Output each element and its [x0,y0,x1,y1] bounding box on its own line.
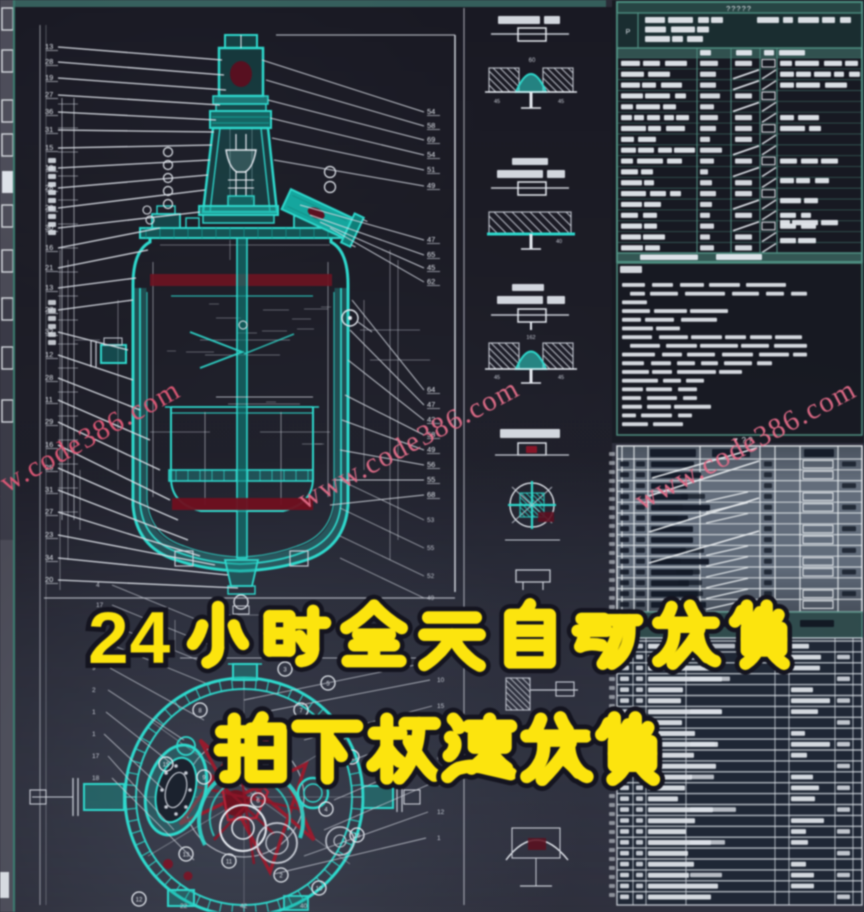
svg-text:31: 31 [45,485,53,494]
svg-text:22: 22 [180,903,188,910]
svg-text:24: 24 [88,598,171,679]
svg-text:?????: ????? [726,4,752,13]
svg-text:23: 23 [45,530,53,539]
svg-text:40: 40 [556,239,562,245]
svg-text:40: 40 [300,903,308,910]
svg-text:62: 62 [427,277,435,286]
svg-text:10: 10 [316,886,323,892]
svg-text:12: 12 [136,897,143,903]
svg-text:15: 15 [163,762,170,768]
svg-text:42: 42 [240,903,248,910]
svg-text:45: 45 [558,375,564,381]
svg-text:27: 27 [45,305,53,314]
svg-text:69: 69 [427,135,435,144]
svg-text:47: 47 [427,400,435,409]
svg-text:45: 45 [558,99,564,105]
svg-text:11: 11 [226,859,233,865]
svg-text:65: 65 [427,250,435,259]
svg-text:17: 17 [92,753,100,760]
svg-text:52: 52 [427,573,435,580]
svg-text:31: 31 [45,125,53,134]
svg-text:15: 15 [437,703,445,710]
svg-text:P: P [626,29,631,36]
svg-text:45: 45 [427,263,435,272]
svg-text:1: 1 [92,709,96,716]
svg-text:27: 27 [45,507,53,516]
svg-text:4: 4 [96,582,100,589]
svg-text:21: 21 [45,263,53,272]
svg-text:28: 28 [45,57,53,66]
svg-text:28: 28 [45,183,53,192]
svg-text:28: 28 [45,373,53,382]
svg-text:13: 13 [45,163,53,172]
svg-text:28: 28 [45,203,53,212]
svg-text:36: 36 [45,107,53,116]
svg-text:16: 16 [45,243,53,252]
svg-text:56: 56 [427,460,435,469]
svg-text:11: 11 [45,395,53,404]
svg-text:54: 54 [427,107,435,116]
svg-text:68: 68 [427,490,435,499]
svg-text:49: 49 [427,595,435,602]
svg-text:58: 58 [427,121,435,130]
svg-text:12: 12 [45,350,53,359]
svg-text:12: 12 [437,809,445,816]
svg-text:10: 10 [437,677,445,684]
svg-text:53: 53 [427,517,435,524]
svg-text:29: 29 [45,417,53,426]
svg-text:162: 162 [526,335,535,341]
svg-text:51: 51 [427,165,435,174]
svg-text:1: 1 [92,731,96,738]
svg-text:27: 27 [45,90,53,99]
svg-text:47: 47 [427,235,435,244]
svg-text:64: 64 [427,385,435,394]
svg-text:34: 34 [45,553,53,562]
svg-text:49: 49 [427,181,435,190]
svg-text:2: 2 [92,687,96,694]
svg-text:19: 19 [45,73,53,82]
svg-text:13: 13 [45,283,53,292]
svg-text:32: 32 [45,327,53,336]
svg-text:55: 55 [427,475,435,484]
svg-text:54: 54 [427,150,435,159]
svg-text:13: 13 [45,42,53,51]
svg-text:45: 45 [494,99,500,105]
svg-text:20: 20 [45,575,53,584]
svg-text:1: 1 [437,835,441,842]
svg-text:18: 18 [92,775,100,782]
svg-text:15: 15 [45,143,53,152]
svg-text:60: 60 [529,58,536,64]
svg-text:30: 30 [45,223,53,232]
svg-text:55: 55 [427,545,435,552]
